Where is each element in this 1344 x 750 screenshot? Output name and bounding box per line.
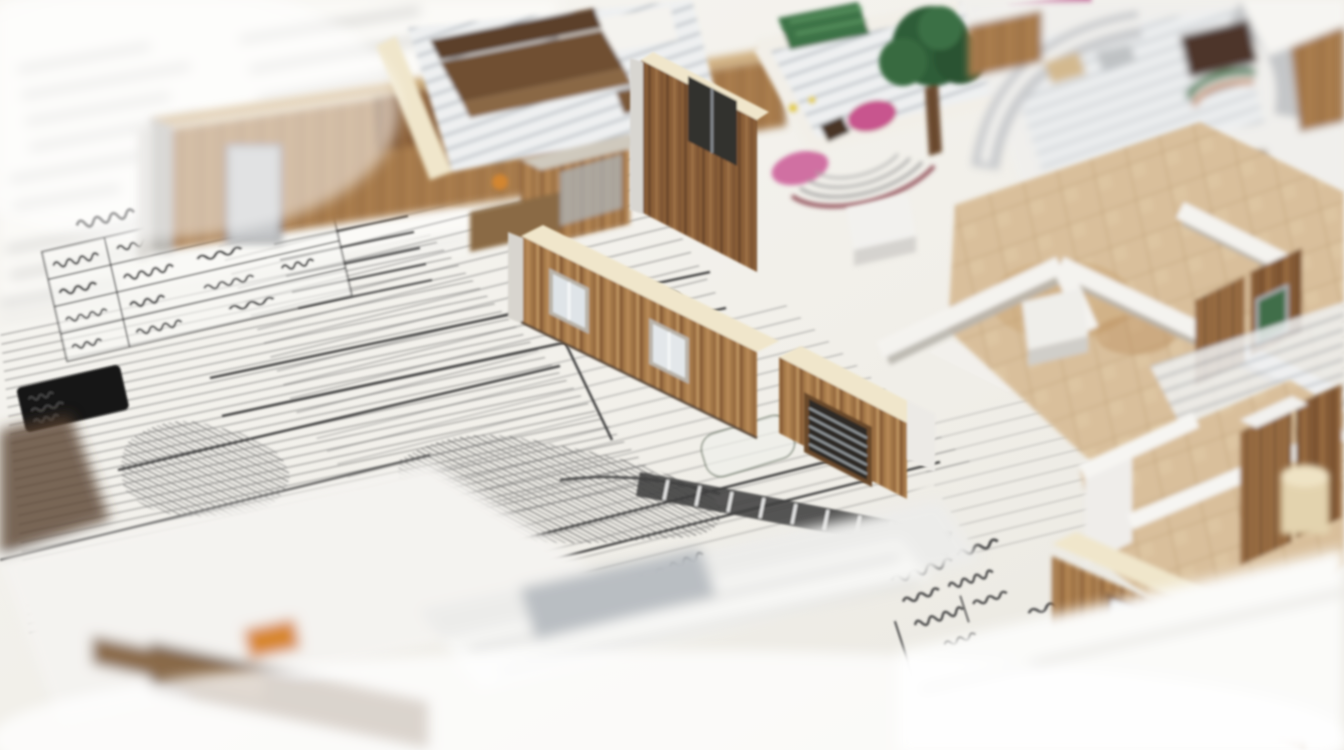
architectural-model-photo	[0, 0, 1344, 750]
cream-cylinder	[1281, 465, 1329, 534]
white-block-2	[1022, 288, 1088, 366]
orange-dot	[492, 174, 508, 190]
scene-canvas	[0, 0, 1344, 750]
